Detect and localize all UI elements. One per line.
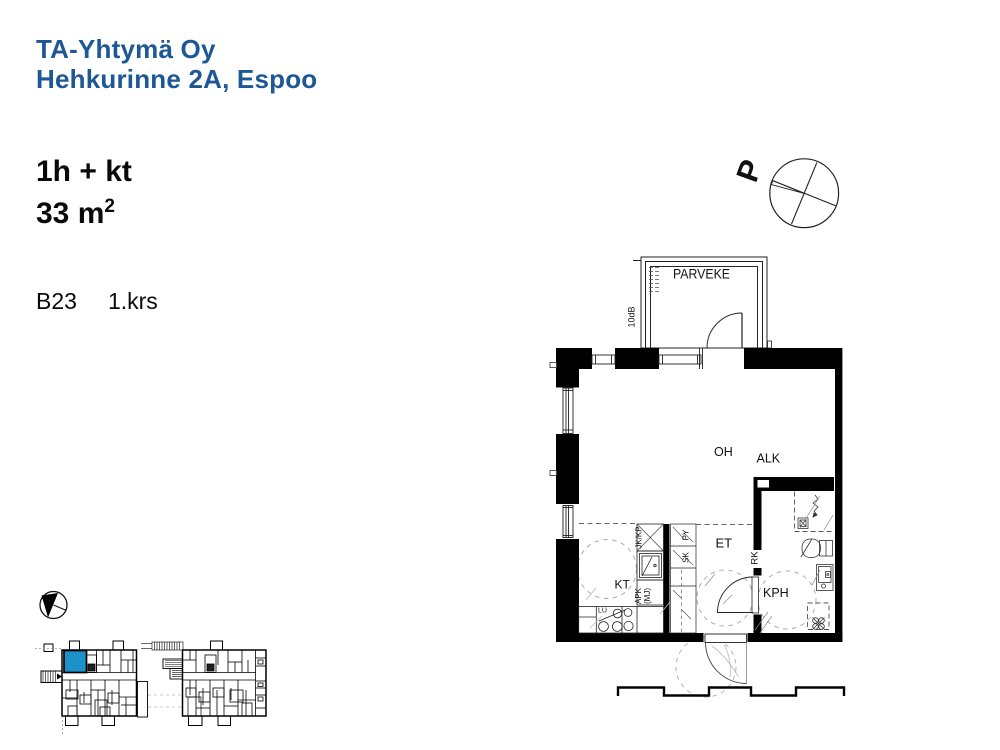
svg-text:SK: SK bbox=[682, 552, 691, 563]
svg-text:(MJ): (MJ) bbox=[643, 588, 652, 604]
svg-text:JK/KP: JK/KP bbox=[635, 526, 644, 548]
svg-text:APK: APK bbox=[634, 587, 643, 604]
svg-text:P: P bbox=[729, 155, 769, 186]
svg-text:PY: PY bbox=[682, 529, 691, 540]
svg-text:10dB: 10dB bbox=[627, 306, 637, 327]
svg-text:KT: KT bbox=[615, 577, 631, 591]
svg-text:RK: RK bbox=[750, 551, 761, 565]
svg-text:OH: OH bbox=[714, 445, 733, 459]
svg-text:KPH: KPH bbox=[763, 586, 789, 600]
svg-text:ET: ET bbox=[716, 536, 733, 551]
svg-text:LU: LU bbox=[598, 608, 607, 615]
svg-text:PARVEKE: PARVEKE bbox=[673, 265, 730, 281]
svg-text:ALK: ALK bbox=[757, 451, 781, 465]
